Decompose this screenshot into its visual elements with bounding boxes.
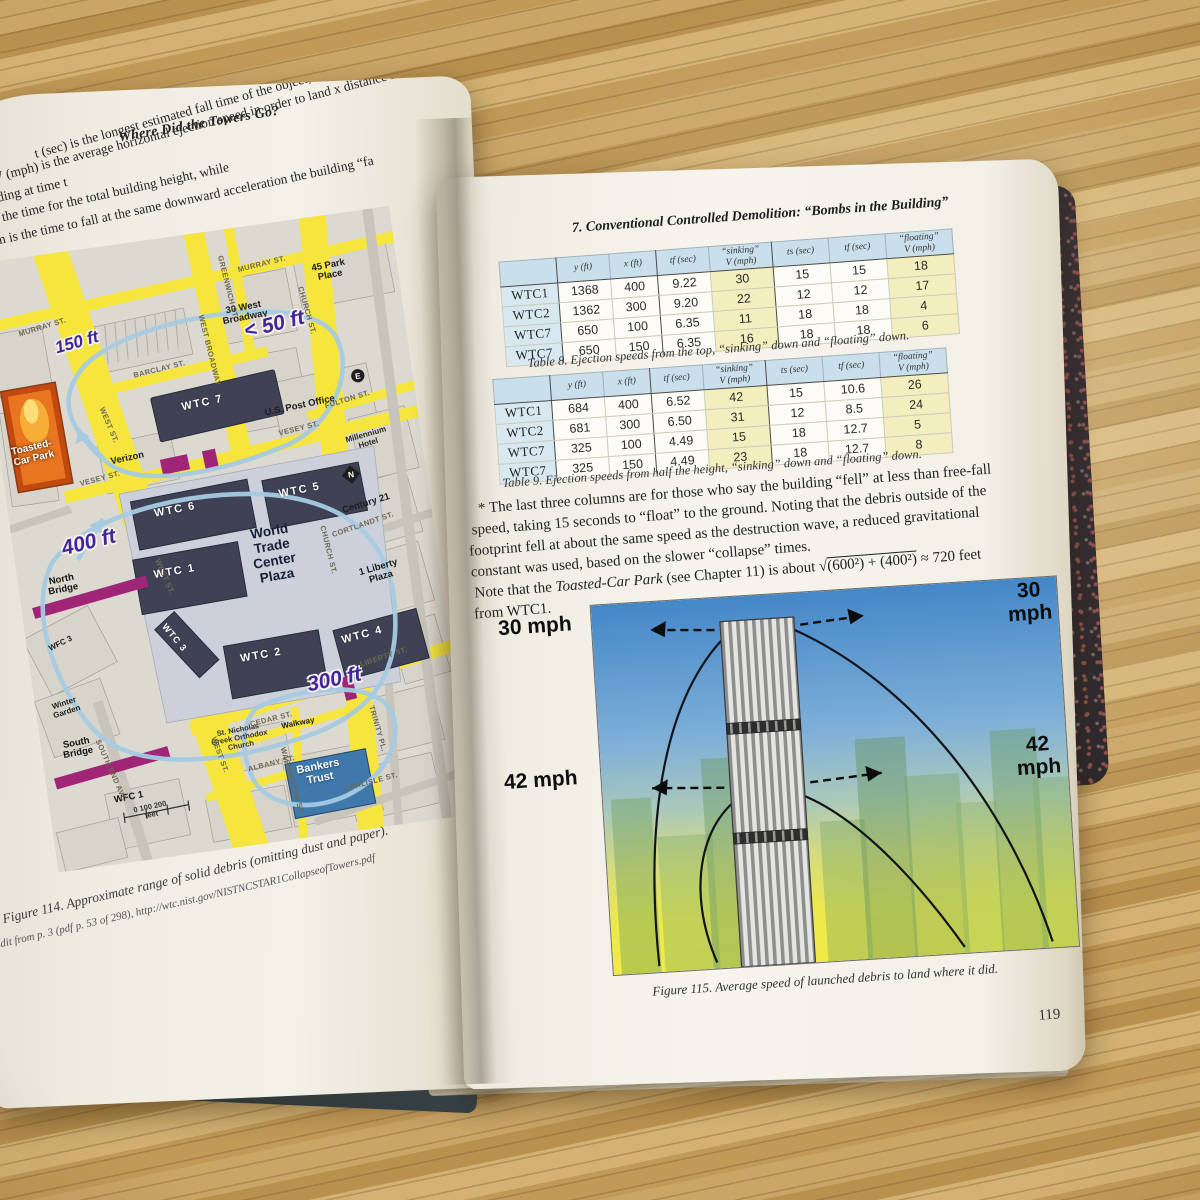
map-street-murray: MURRAY ST. xyxy=(18,316,67,338)
map-street-west: WEST ST. xyxy=(98,406,120,444)
map-label-verizon: Verizon xyxy=(110,450,145,467)
map-label-wtc-plaza: World Trade Center Plaza xyxy=(247,520,300,587)
column-header: x (ft) xyxy=(603,369,652,397)
right-page: 7. Conventional Controlled Demolition: “… xyxy=(436,158,1086,1089)
map-street-trinity: TRINITY PL. xyxy=(367,705,388,753)
map-street-vesey: VESEY ST. xyxy=(79,470,121,489)
speed-label-42mph-left: 42 mph xyxy=(503,767,578,794)
map-street-carlisle: CARLISLE ST. xyxy=(343,771,398,793)
map-label-north-bridge: North Bridge xyxy=(46,572,79,598)
column-header: y (ft) xyxy=(550,372,605,400)
book-photo: { "colors":{ "map_street_yellow":"#f6e53… xyxy=(0,0,1200,1200)
column-header: x (ft) xyxy=(609,251,658,279)
map-label-bankers-trust: Bankers Trust xyxy=(296,757,343,789)
map-label-millennium-hotel: Millennium Hotel xyxy=(345,425,390,453)
map-street-barclay: BARCLAY ST. xyxy=(133,359,187,380)
map-label-wtc7: WTC 7 xyxy=(181,394,225,414)
page-number: 119 xyxy=(1038,1006,1061,1024)
map-label-wtc6: WTC 6 xyxy=(153,501,197,521)
map-street-murray: MURRAY ST. xyxy=(237,254,287,274)
map-label-1-liberty-plaza: 1 Liberty Plaza xyxy=(358,558,402,589)
map-label-toasted-car-park: Toasted- Car Park xyxy=(10,439,55,469)
map-labels-layer: WTC 7WTC 6WTC 5WTC 1WTC 3WTC 2WTC 4World… xyxy=(0,206,474,872)
map-distance-300ft: 300 ft xyxy=(305,663,363,697)
map-scale-bar: 0 100 200 feet xyxy=(133,800,169,823)
column-header: tf (sec) xyxy=(649,365,704,393)
note-result: ≈ 720 feet xyxy=(916,547,982,568)
map-street-fulton: FULTON ST. xyxy=(324,389,371,410)
map-street-vesey: VESEY ST. xyxy=(278,420,320,438)
map-label-wtc5: WTC 5 xyxy=(278,481,322,501)
figure-115 xyxy=(590,575,1080,976)
map-label-wtc4: WTC 4 xyxy=(341,625,385,647)
map-distance-400ft: 400 ft xyxy=(60,525,119,560)
map-street-cortlandt: CORTLANDT ST. xyxy=(331,510,395,539)
map-distance-150ft: 150 ft xyxy=(53,328,101,358)
map-label-wtc3: WTC 3 xyxy=(160,622,189,654)
debris-trajectory-diagram xyxy=(591,576,1079,975)
map-label-winter-garden: Winter Garden xyxy=(50,695,82,720)
map-label-wfc3: WFC 3 xyxy=(48,635,74,654)
map-street-south-end: SOUTH END AVE xyxy=(94,738,128,802)
map-label-south-bridge: South Bridge xyxy=(61,736,94,762)
map-label-45-park-place: 45 Park Place xyxy=(311,258,348,285)
map-figure-114: E N WTC 7WTC 6WTC 5WTC 1WTC 3WTC 2WTC 4W… xyxy=(0,206,474,872)
map-street-liberty: LIBERTY ST. xyxy=(359,646,408,669)
map-label-wtc2: WTC 2 xyxy=(240,647,284,666)
map-street-west-broadway: WEST BROADWAY xyxy=(197,314,222,387)
